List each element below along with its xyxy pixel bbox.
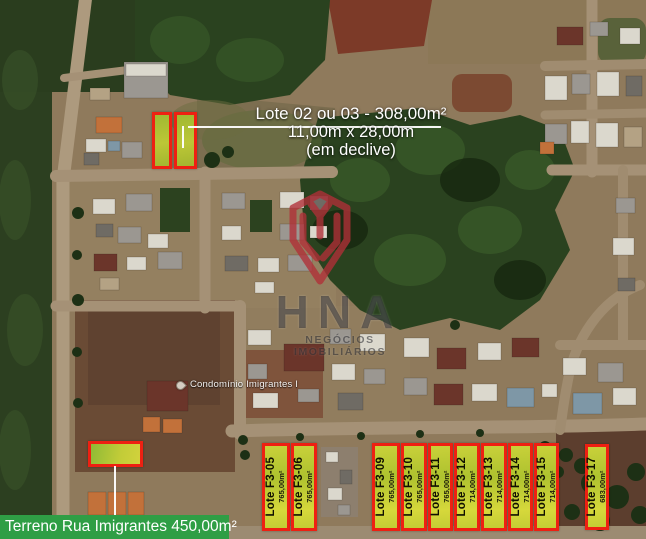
terreno-banner: Terreno Rua Imigrantes 450,00m² (0, 515, 229, 539)
lot-highlight-lote-f3-06: Lote F3-06765,00m² (291, 443, 317, 531)
lot-highlight-lote-f3-15: Lote F3-15714,00m² (534, 443, 559, 531)
lot-label: Lote F3-05765,00m² (265, 446, 287, 528)
annotation-line3: (em declive) (252, 141, 450, 159)
lot-area: 765,00m² (388, 457, 396, 517)
lot-highlight-lote-03 (174, 112, 197, 169)
lot-label: Lote F3-14714,00m² (511, 446, 530, 528)
lot-highlight-lote-f3-05: Lote F3-05765,00m² (262, 443, 290, 531)
lot-label: Lote F3-17683,00m² (588, 447, 606, 527)
map-place-label: Condomínio Imigrantes I (176, 379, 298, 390)
lot-area: 765,00m² (443, 458, 451, 517)
terreno-leader-line (114, 466, 116, 516)
map-place-label-text: Condomínio Imigrantes I (190, 379, 298, 390)
annotation-line1: Lote 02 ou 03 - 308,00m² (252, 105, 450, 123)
lot-highlight-lote-f3-09: Lote F3-09765,00m² (372, 443, 400, 531)
lot-area: 765,00m² (416, 457, 424, 517)
lot-label: Lote F3-11765,00m² (431, 446, 450, 528)
lot-highlight-lote-f3-13: Lote F3-13714,00m² (481, 443, 507, 531)
lot-highlight-lote-f3-12: Lote F3-12714,00m² (454, 443, 480, 531)
leader-line-vertical (182, 126, 184, 148)
lot-area: 765,00m² (306, 457, 314, 517)
lot-highlight-terreno-rua-imigrantes (88, 441, 143, 467)
map-pin-icon (174, 379, 187, 392)
lot-label: Lote F3-09765,00m² (375, 446, 397, 528)
lot-label: Lote F3-12714,00m² (457, 446, 477, 528)
lot-area: 714,00m² (496, 457, 504, 517)
lot-label: Lote F3-15714,00m² (537, 446, 556, 528)
lot-label: Lote F3-06765,00m² (294, 446, 314, 528)
lot-label: Lote F3-13714,00m² (484, 446, 504, 528)
lot-area: 714,00m² (523, 457, 531, 517)
lot-highlight-lote-f3-11: Lote F3-11765,00m² (428, 443, 453, 531)
lot-area: 714,00m² (549, 457, 557, 517)
lot-name: Lote F3-15 (537, 457, 549, 517)
lot-name: Lote F3-14 (511, 457, 523, 517)
lot-area: 683,00m² (599, 457, 607, 517)
lot-highlight-lote-02 (152, 112, 172, 169)
lot-highlight-lote-f3-10: Lote F3-10765,00m² (401, 443, 427, 531)
lot-label: Lote F3-10765,00m² (404, 446, 424, 528)
annotation-line2: 11,00m x 28,00m (252, 123, 450, 141)
lot-highlight-lote-f3-14: Lote F3-14714,00m² (508, 443, 533, 531)
lot-area: 765,00m² (278, 457, 286, 517)
lot-area: 714,00m² (469, 457, 477, 517)
lot-highlight-lote-f3-17: Lote F3-17683,00m² (585, 444, 609, 530)
top-lot-annotation: Lote 02 ou 03 - 308,00m² 11,00m x 28,00m… (252, 105, 450, 159)
listing-image: HNA NEGÓCIOS IMOBILIÁRIOS Lote F3-05765,… (0, 0, 646, 539)
